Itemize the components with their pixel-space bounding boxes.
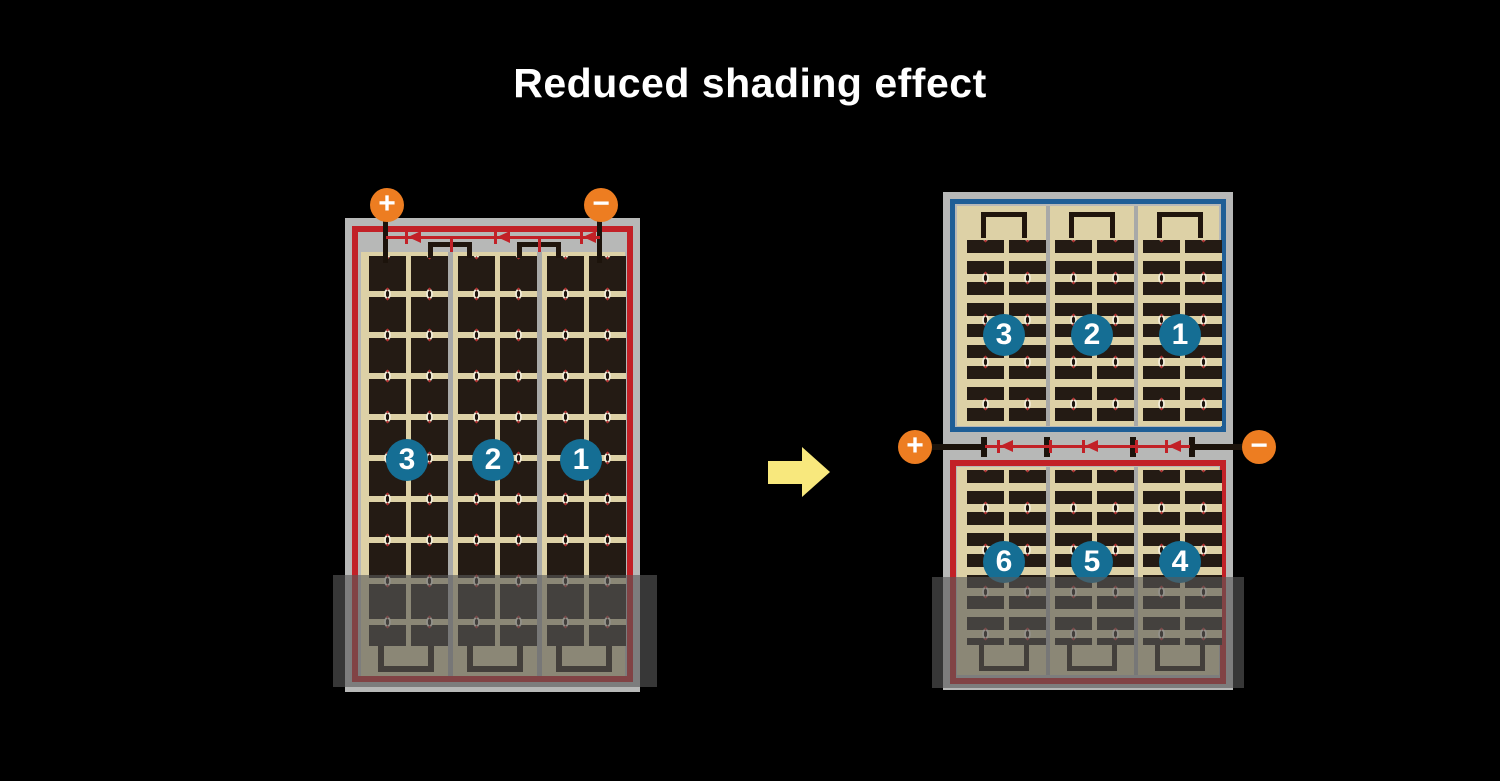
bus-tap-wire <box>1135 440 1138 453</box>
string-divider <box>1046 206 1050 426</box>
minus-sign: − <box>1250 429 1268 463</box>
string-number-badge: 1 <box>1159 314 1201 356</box>
plus-sign: + <box>378 187 396 221</box>
bypass-diode-icon <box>583 231 596 243</box>
string-number-badge: 3 <box>983 314 1025 356</box>
bypass-diode-icon <box>1000 440 1013 452</box>
string-jumper-wire <box>1069 212 1115 238</box>
string-number-badge: 1 <box>560 439 602 481</box>
minus-terminal-icon: − <box>584 188 618 222</box>
diagram-canvas: Reduced shading effect + <box>0 0 1500 781</box>
arrow-shaft <box>768 461 804 484</box>
terminal-lead-wire <box>928 444 986 450</box>
terminal-lead-wire <box>1190 444 1248 450</box>
plus-sign: + <box>906 429 924 463</box>
string-number-badge: 2 <box>472 439 514 481</box>
diagram-title: Reduced shading effect <box>0 60 1500 107</box>
bus-tap-wire <box>1049 440 1052 453</box>
plus-terminal-icon: + <box>898 430 932 464</box>
shadow-overlay <box>932 577 1244 688</box>
shadow-overlay <box>333 575 657 687</box>
string-number-badge: 3 <box>386 439 428 481</box>
minus-sign: − <box>592 187 610 221</box>
string-jumper-wire <box>1157 212 1203 238</box>
string-jumper-wire <box>981 212 1027 238</box>
string-number-badge: 2 <box>1071 314 1113 356</box>
bypass-diode-icon <box>497 231 510 243</box>
minus-terminal-icon: − <box>1242 430 1276 464</box>
bypass-diode-icon <box>1085 440 1098 452</box>
bypass-diode-icon <box>1168 440 1181 452</box>
plus-terminal-icon: + <box>370 188 404 222</box>
string-divider <box>1134 206 1138 426</box>
bypass-diode-icon <box>408 231 421 243</box>
arrow-head <box>802 447 830 497</box>
bus-tap-wire <box>450 238 453 252</box>
bus-tap-wire <box>538 238 541 252</box>
